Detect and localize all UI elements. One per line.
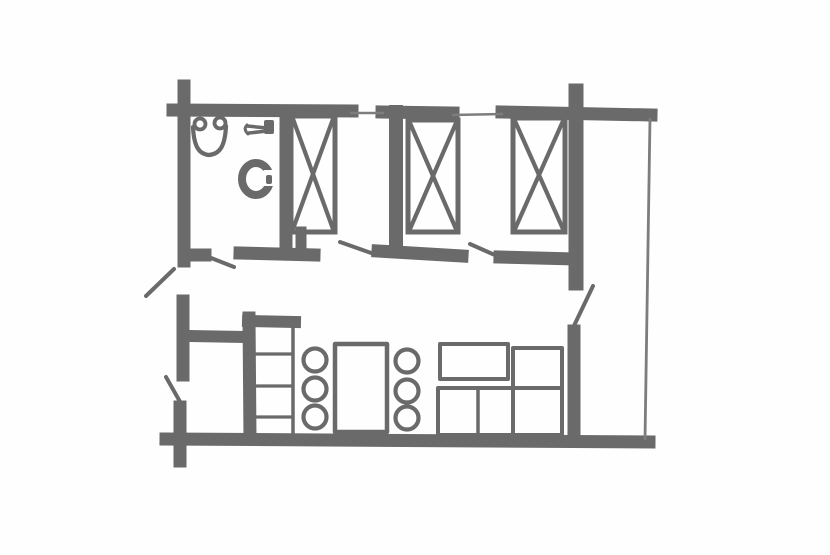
window-2 [452, 114, 503, 115]
floor-plan-page [0, 0, 830, 555]
dining-chair-2 [304, 378, 327, 401]
toilet-hinge [266, 175, 272, 184]
dining-chair-3 [304, 406, 327, 429]
bedroom1-door-leaf [340, 242, 374, 254]
bedroom2-door-leaf [470, 244, 497, 256]
sofa-corner [513, 348, 562, 436]
dining-chair-1 [304, 349, 327, 372]
dining-table [335, 344, 387, 432]
hall-wall-b [378, 251, 462, 256]
hall-wall-c [500, 257, 574, 259]
dining-chair-4 [396, 350, 419, 373]
entry-room-wall [189, 336, 246, 337]
balcony-edge-line [645, 118, 650, 440]
side-door-leaf [146, 269, 174, 296]
dining-chair-6 [396, 407, 419, 430]
bathroom-sink-ear-left [195, 119, 206, 130]
coffee-table [440, 344, 508, 379]
kitchen-counter-cap [248, 321, 295, 322]
balcony-door-leaf [571, 286, 593, 332]
top-wall-left [173, 110, 352, 111]
bottom-wall [166, 439, 649, 442]
floor-plan-drawing [0, 0, 830, 555]
towel-holder-base [264, 120, 274, 134]
sofa-seat [438, 388, 562, 435]
kitchen-wall [249, 318, 250, 439]
towel-holder-hook [245, 125, 248, 134]
dining-chair-5 [396, 380, 419, 403]
bathroom-sink-ear-right [215, 118, 226, 129]
